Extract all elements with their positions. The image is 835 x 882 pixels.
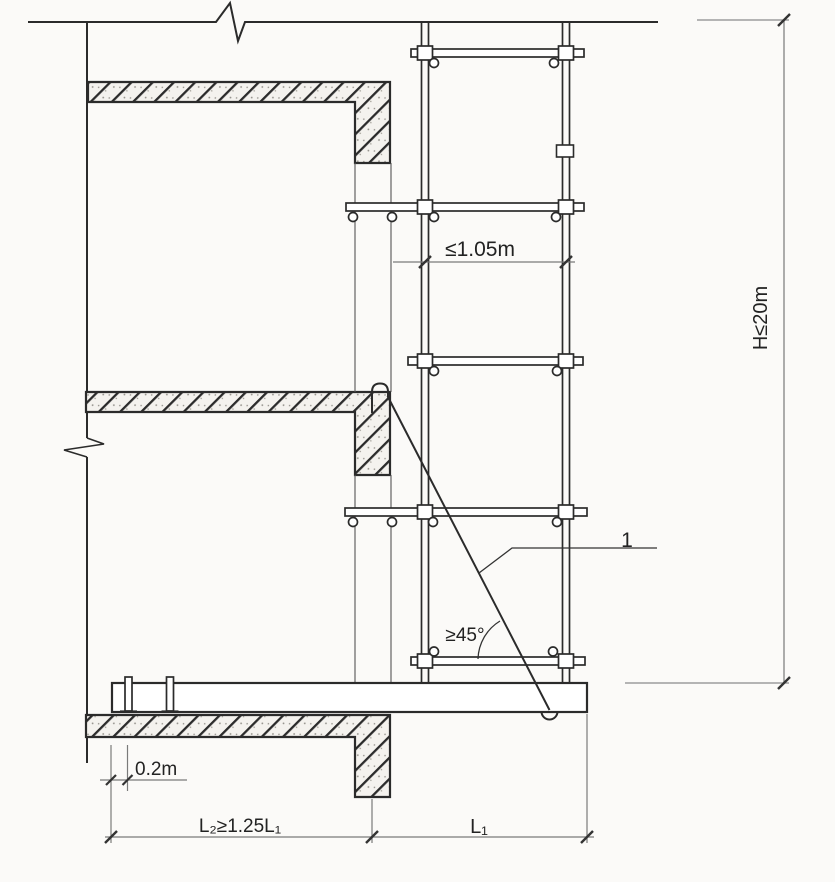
coupler-icon — [559, 200, 574, 214]
callout-1-label: 1 — [621, 529, 633, 552]
ledger-level-5 — [411, 647, 585, 668]
anchor-offset-label: 0.2m — [135, 759, 177, 780]
coupler-bolt-icon — [388, 518, 397, 527]
cantilever-beam — [112, 683, 587, 712]
inner-beam-span-label: L₂≥1.25L₁ — [199, 816, 281, 837]
dim-pole-spacing: ≤1.05m — [393, 238, 575, 268]
coupler-bolt-icon — [429, 518, 438, 527]
coupler-bolt-icon — [552, 213, 561, 222]
coupler-bolt-icon — [430, 367, 439, 376]
pole-spacing-label: ≤1.05m — [445, 238, 515, 261]
brace-angle-annotation: ≥45° — [445, 621, 500, 659]
coupler-bolt-icon — [430, 647, 439, 656]
coupler-bolt-icon — [430, 59, 439, 68]
floor-slab-upper — [88, 82, 390, 163]
dim-total-height: H≤20m — [625, 14, 790, 689]
total-height-label: H≤20m — [750, 286, 772, 350]
building-outline — [28, 3, 658, 763]
floor-slab-lower — [86, 715, 390, 797]
coupler-icon — [418, 200, 433, 214]
coupler-icon — [559, 654, 574, 668]
coupler-icon — [559, 354, 574, 368]
coupler-icon — [418, 354, 433, 368]
drawing-canvas: ≥45° 1 ≤1.05m H≤20m 0.2m L₂≥1. — [0, 0, 835, 882]
dim-anchor-offset: 0.2m — [100, 745, 187, 843]
coupler-bolt-icon — [550, 59, 559, 68]
coupler-icon — [559, 505, 574, 519]
scaffold-inner-pole — [422, 22, 429, 683]
ledger-level-3 — [408, 354, 583, 376]
coupler-bolt-icon — [549, 647, 558, 656]
brace-angle-label: ≥45° — [445, 625, 484, 646]
callout-leader: 1 — [479, 529, 657, 573]
pole-splice-coupler — [557, 145, 574, 157]
coupler-icon — [418, 505, 433, 519]
coupler-icon — [559, 46, 574, 60]
coupler-bolt-icon — [349, 213, 358, 222]
scaffold-outer-pole — [563, 22, 570, 683]
ledger-level-1 — [411, 46, 584, 68]
coupler-bolt-icon — [388, 213, 397, 222]
coupler-icon — [418, 46, 433, 60]
wall-break-symbol — [64, 438, 104, 457]
coupler-bolt-icon — [430, 213, 439, 222]
scaffold-section-diagram: ≥45° 1 ≤1.05m H≤20m 0.2m L₂≥1. — [0, 0, 835, 882]
coupler-bolt-icon — [349, 518, 358, 527]
wall-tie-level-4 — [345, 505, 587, 527]
diagonal-brace — [372, 384, 558, 720]
cantilever-span-label: L₁ — [470, 816, 488, 838]
top-cut-line — [28, 3, 658, 41]
wall-tie-level-2 — [346, 200, 584, 222]
coupler-bolt-icon — [553, 518, 562, 527]
coupler-bolt-icon — [553, 367, 562, 376]
floor-slab-middle — [86, 392, 390, 475]
coupler-icon — [418, 654, 433, 668]
